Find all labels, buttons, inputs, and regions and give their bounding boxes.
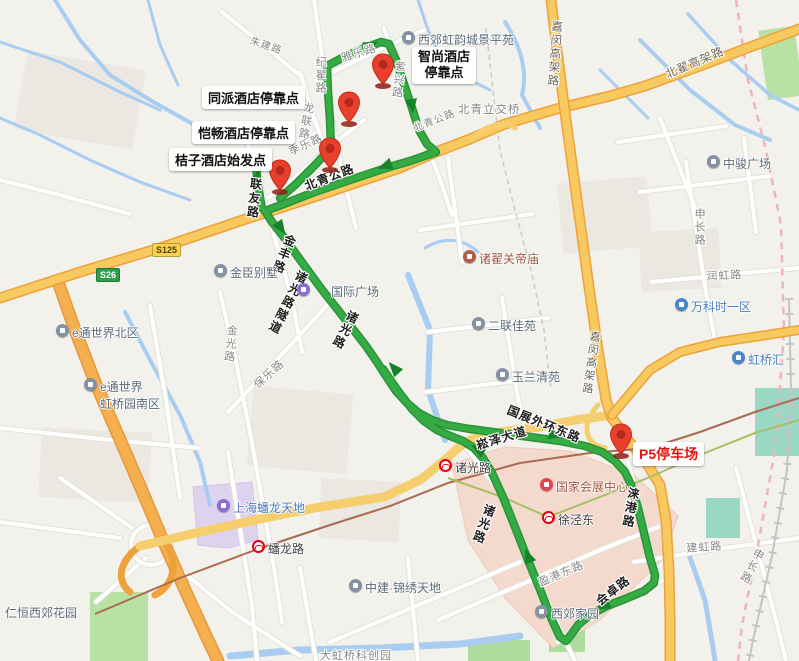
poi-zhongjun[interactable]: 中骏广场 bbox=[707, 155, 771, 172]
road-label-jianhong: 建虹路 bbox=[686, 540, 723, 555]
poi-wanke[interactable]: 万科时一区 bbox=[675, 298, 751, 315]
poi-necc[interactable]: 国家会展中心 bbox=[540, 478, 628, 495]
office-park-icon bbox=[84, 378, 97, 391]
metro-station-xujingdong[interactable]: 徐泾东 bbox=[542, 511, 594, 528]
stop-label-juzi: 桔子酒店始发点 bbox=[169, 148, 272, 171]
stop-label-kaichang: 恺畅酒店停靠点 bbox=[192, 121, 295, 144]
poi-zhongjian[interactable]: 中建·锦绣天地 bbox=[349, 579, 441, 596]
poi-panlong-tiandi[interactable]: 上海蟠龙天地 bbox=[217, 499, 305, 516]
building-icon bbox=[707, 155, 720, 168]
poi-erlian[interactable]: 二联佳苑 bbox=[472, 317, 536, 334]
metro-icon bbox=[439, 459, 452, 472]
attraction-icon bbox=[217, 499, 230, 512]
metro-station-zhuguang[interactable]: 诸光路 bbox=[439, 459, 491, 476]
road-label-dahongqiao: 大虹桥科创园 bbox=[320, 650, 392, 661]
poi-guoji-guangchang[interactable]: 国际广场 bbox=[297, 283, 379, 300]
stop-label-tongpai: 同派酒店停靠点 bbox=[202, 86, 305, 109]
road-label-shenchang-north: 申长路 bbox=[693, 208, 705, 247]
metro-icon bbox=[542, 511, 555, 524]
mall-icon bbox=[297, 283, 310, 296]
residence-icon bbox=[535, 605, 548, 618]
poi-guandimiao[interactable]: 诸翟关帝庙 bbox=[463, 250, 539, 267]
poi-xijiao-hongyun[interactable]: 西郊虹韵城景平苑 bbox=[402, 31, 514, 48]
road-label-jizhai: 纪翟路 bbox=[314, 56, 326, 95]
residence-icon bbox=[472, 317, 485, 330]
exhibition-center-icon bbox=[540, 478, 553, 491]
metro-icon bbox=[252, 540, 265, 553]
map-viewport[interactable]: 朱建路 雅乐路 纪翟路 紫兴路 龙联路 季乐路 联友路 北青公路 北青公路 北青… bbox=[0, 0, 799, 661]
residence-icon bbox=[402, 31, 415, 44]
temple-icon bbox=[463, 250, 476, 263]
poi-jinchen[interactable]: 金臣别墅 bbox=[214, 264, 278, 281]
poi-renheng[interactable]: 仁恒西郊花园 bbox=[5, 604, 77, 621]
residence-icon bbox=[496, 368, 509, 381]
poi-yulan[interactable]: 玉兰清苑 bbox=[496, 368, 560, 385]
p5-parking-pin[interactable] bbox=[608, 423, 634, 459]
road-label-beiqing-interchange: 北青立交桥 bbox=[458, 104, 521, 117]
highway-badge-s125: S125 bbox=[152, 243, 181, 257]
highway-badge-s26: S26 bbox=[96, 268, 120, 282]
stop-label-zhishang: 智尚酒店 停靠点 bbox=[412, 47, 476, 84]
poi-etong-south[interactable]: e通世界 虹桥园南区 bbox=[84, 378, 160, 412]
stop-label-p5: P5停车场 bbox=[633, 442, 704, 466]
poi-hongqiaohui[interactable]: 虹桥汇 bbox=[732, 351, 784, 368]
residence-icon bbox=[349, 579, 362, 592]
poi-xijiao-jiayuan[interactable]: 西郊家园 bbox=[535, 605, 599, 622]
building-icon bbox=[732, 351, 745, 364]
metro-station-panlong[interactable]: 蟠龙路 bbox=[252, 540, 304, 557]
building-icon bbox=[675, 298, 688, 311]
road-label-runhong: 润虹路 bbox=[706, 269, 743, 283]
office-park-icon bbox=[56, 324, 69, 337]
stop-pin-tongpai[interactable] bbox=[336, 91, 362, 127]
stop-pin-zhishang[interactable] bbox=[370, 53, 396, 89]
stop-pin-kaichang[interactable] bbox=[317, 137, 343, 173]
poi-etong-north[interactable]: e通世界北区 bbox=[56, 324, 139, 341]
residence-icon bbox=[214, 264, 227, 277]
